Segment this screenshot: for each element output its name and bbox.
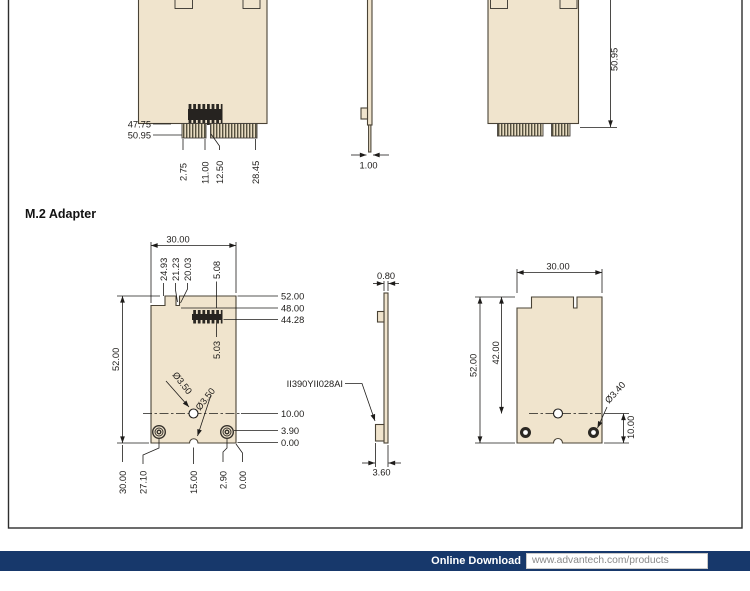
gold-fingers (211, 124, 258, 139)
pcb-outline (517, 297, 602, 443)
dim-label: 44.28 (281, 315, 304, 325)
dim-label: 42.00 (491, 341, 501, 364)
mini-pcie-side-view: 1.00 (351, 0, 389, 171)
pcb-outline (488, 0, 579, 124)
mini-pcie-front-view: 47.75 50.95 2.75 11.00 12.50 28.45 (128, 0, 267, 184)
dim-label: 24.93 (159, 258, 169, 281)
dim-label: 30.00 (546, 262, 569, 272)
section-heading: M.2 Adapter (25, 207, 96, 221)
gold-fingers (182, 124, 206, 139)
leader-line (236, 444, 243, 462)
dim-label: 11.00 (201, 161, 211, 184)
dim-label: Ø3.40 (603, 380, 627, 406)
gold-fingers (498, 124, 544, 137)
pcb-edge (368, 0, 373, 125)
dim-label: 48.00 (281, 303, 304, 313)
mount-hole (588, 427, 599, 438)
dim-label: 28.45 (251, 161, 261, 184)
side-component (361, 108, 368, 119)
edge-connector (369, 125, 371, 152)
online-download-label: Online Download (380, 555, 521, 567)
dim-label: 50.95 (128, 130, 151, 140)
dim-label: 52.00 (111, 348, 121, 371)
dim-label: 52.00 (281, 291, 304, 301)
dim-label: 10.00 (626, 416, 636, 439)
mini-pcie-back-view: 50.95 (488, 0, 620, 136)
dim-label: 27.10 (139, 471, 149, 494)
datasheet-page: 47.75 50.95 2.75 11.00 12.50 28.45 1.00 … (0, 0, 750, 591)
leader-line (345, 384, 375, 422)
hole (189, 409, 198, 418)
download-url-text: www.advantech.com/products (527, 554, 707, 568)
dim-label: 10.00 (281, 409, 304, 419)
download-url-box: www.advantech.com/products (526, 553, 708, 569)
hole (554, 409, 563, 418)
dim-label: 0.80 (377, 271, 395, 281)
dim-label: 52.00 (469, 354, 479, 377)
dim-label: 5.08 (212, 261, 222, 279)
dim-label: 0.00 (238, 471, 248, 489)
m2-front-view: 30.00 24.93 21.23 20.03 5.08 5.03 52.00 … (111, 235, 304, 495)
m2-back-view: 30.00 52.00 42.00 Ø3.40 10.00 (469, 262, 637, 444)
mechanical-drawing: 47.75 50.95 2.75 11.00 12.50 28.45 1.00 … (0, 0, 750, 591)
mount-hole (520, 427, 531, 438)
dim-label: 30.00 (118, 471, 128, 494)
dim-label: 3.90 (281, 426, 299, 436)
dim-label: 0.00 (281, 438, 299, 448)
dim-label: 2.90 (219, 471, 229, 489)
gold-fingers (552, 124, 571, 137)
dim-label: 50.95 (610, 48, 620, 71)
dim-label: 15.00 (189, 471, 199, 494)
dim-label: 5.03 (212, 341, 222, 359)
dim-label: 47.75 (128, 119, 151, 129)
dim-label: 3.60 (372, 468, 390, 478)
dim-label: 21.23 (171, 258, 181, 281)
m2-side-view: 0.80 II390YII028AI 3.60 (287, 271, 401, 478)
part-number-label: II390YII028AI (287, 379, 343, 389)
dim-label: 12.50 (215, 161, 225, 184)
dim-label: 2.75 (179, 163, 189, 181)
pin-header (192, 310, 223, 324)
dim-label: 30.00 (166, 235, 189, 245)
dim-label: 1.00 (359, 161, 377, 171)
connector-socket (376, 425, 385, 442)
pin-header (188, 104, 223, 125)
side-component (378, 312, 385, 323)
dim-label: 20.03 (183, 258, 193, 281)
pcb-edge (384, 293, 388, 443)
